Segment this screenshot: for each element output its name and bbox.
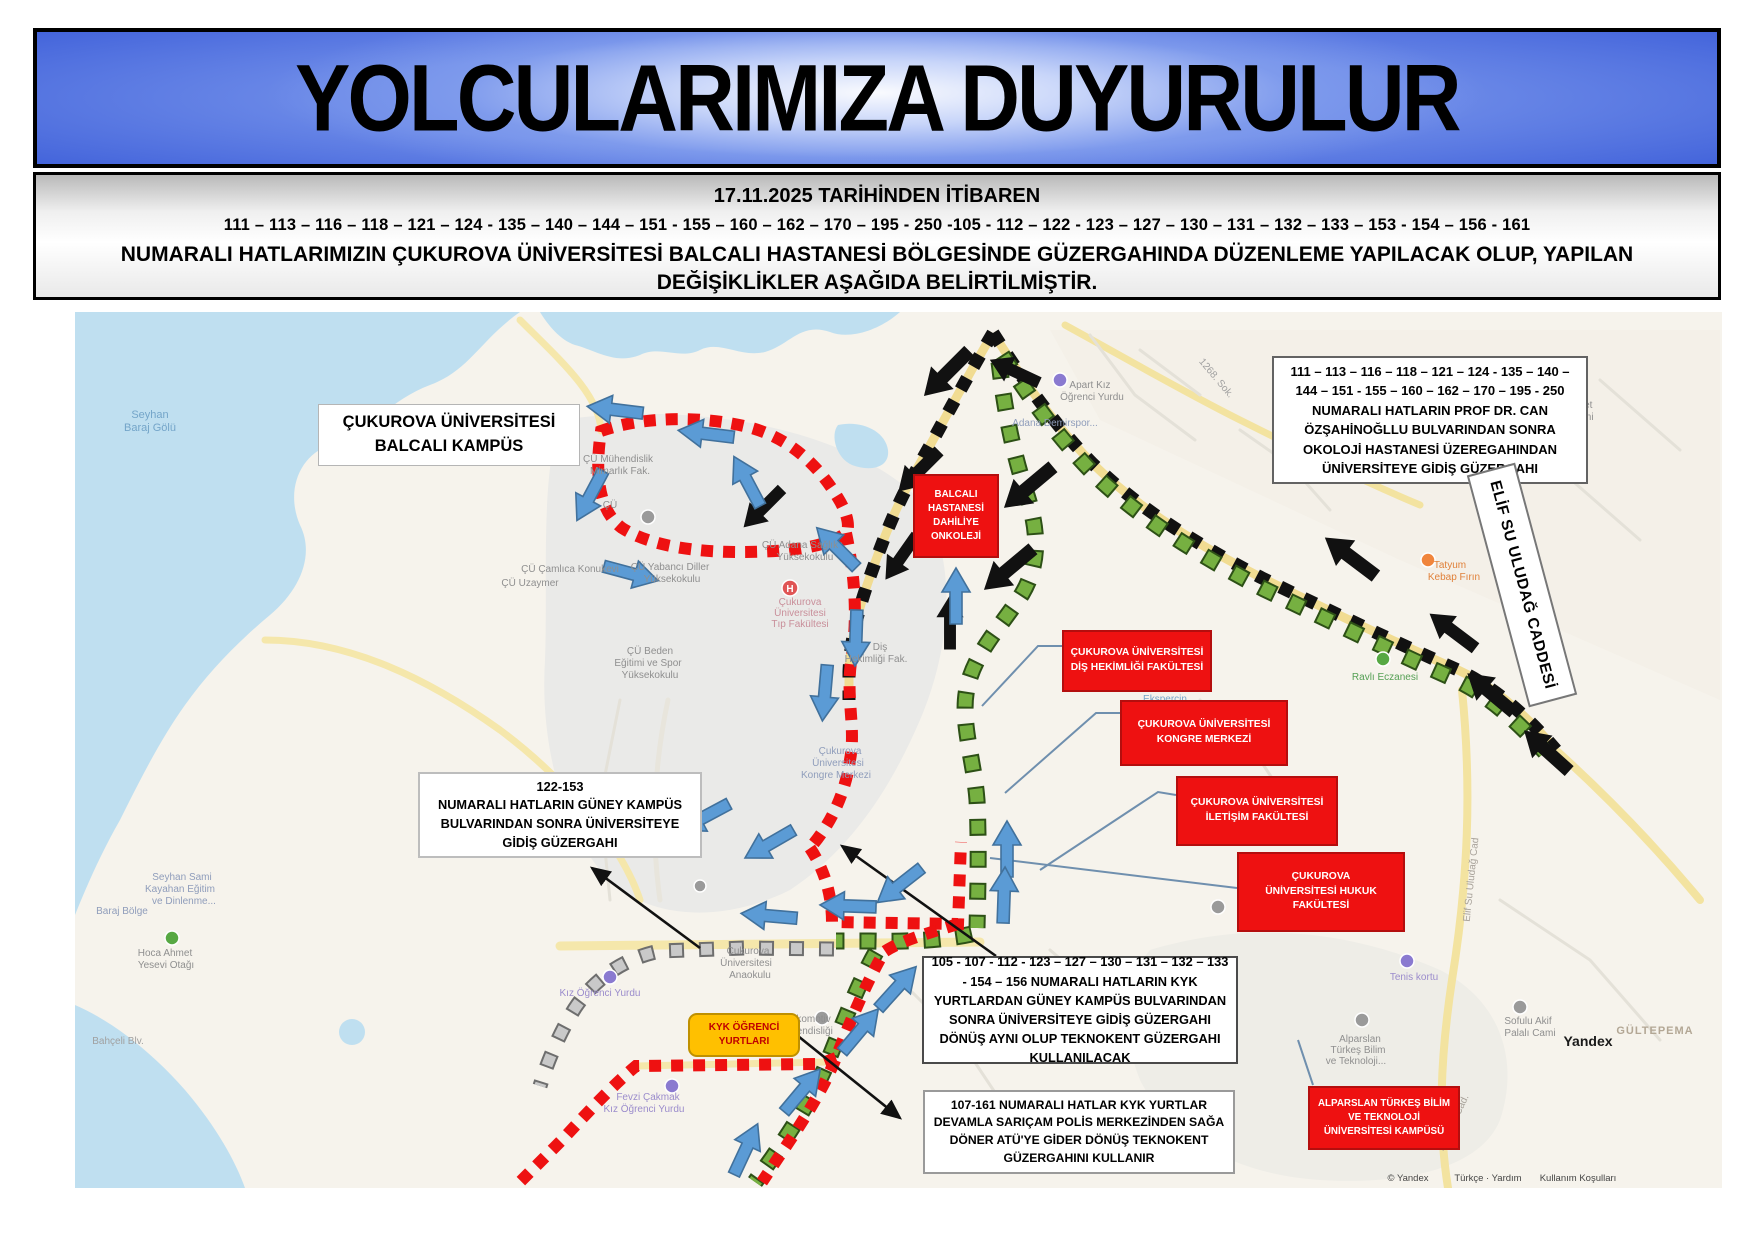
map-label: Çukurova: [727, 946, 770, 957]
map-label: Tatyum: [1434, 560, 1466, 571]
map-label: Diş: [873, 642, 887, 653]
building-icon: [1211, 900, 1225, 914]
map-label: Kız Öğrenci Yurdu: [560, 987, 641, 999]
map-label: Kongre Merkezi: [801, 770, 871, 781]
university-icon: [1355, 1013, 1369, 1027]
attribution-copyright: © Yandex: [1388, 1173, 1429, 1184]
dorm-icon: [603, 970, 617, 984]
map-label: Seyhan: [131, 409, 168, 421]
map-label: Yesevi Otağı: [138, 960, 194, 971]
callout-alparslan-universitesi: ALPARSLAN TÜRKEŞ BİLİM VE TEKNOLOJİ ÜNİV…: [1308, 1086, 1460, 1150]
pharmacy-icon: [1376, 652, 1390, 666]
callout-text: 107-161 NUMARALI HATLAR KYK YURTLAR DEVA…: [933, 1097, 1225, 1168]
map-label: Öğrenci Yurdu: [1060, 391, 1124, 403]
map-label: Tenis kortu: [1390, 972, 1438, 983]
callout-route-105: 105 - 107 - 112 - 123 – 127 – 130 – 131 …: [922, 956, 1238, 1064]
map-label: ve Dinlenme...: [152, 896, 216, 907]
map-label: Türkeş Bilim: [1330, 1045, 1385, 1056]
callout-hukuk-fakultesi: ÇUKUROVA ÜNİVERSİTESİ HUKUK FAKÜLTESİ: [1237, 852, 1405, 932]
callout-kyk-yurtlari: KYK ÖĞRENCİ YURTLARI: [688, 1013, 800, 1057]
road-label: Bahçeli Blv.: [92, 1036, 144, 1047]
callout-line: BALCALI KAMPÜS: [375, 435, 524, 459]
map-label: Palalı Cami: [1504, 1028, 1555, 1039]
callout-text: ÇUKUROVA ÜNİVERSİTESİ HUKUK FAKÜLTESİ: [1261, 870, 1381, 915]
attribution-links: Türkçe · Yardım: [1454, 1173, 1521, 1184]
svg-text:H: H: [786, 584, 793, 595]
notice-date: 17.11.2025 TARİHİNDEN İTİBAREN: [36, 185, 1718, 208]
map-label: ÇÜ Yabancı Diller: [631, 561, 710, 573]
callout-line: ÇUKUROVA ÜNİVERSİTESİ: [343, 411, 556, 435]
map-label: Kız Öğrenci Yurdu: [604, 1103, 685, 1115]
callout-text: KYK ÖĞRENCİ YURTLARI: [690, 1021, 798, 1050]
building-icon: [694, 880, 706, 892]
callout-text: 111 – 113 – 116 – 118 – 121 – 124 - 135 …: [1282, 362, 1578, 479]
callout-balcali-kampus: ÇUKUROVA ÜNİVERSİTESİ BALCALI KAMPÜS: [318, 404, 580, 466]
map-label: Yüksekokulu: [644, 574, 701, 585]
map-label: Eğitimi ve Spor: [614, 658, 682, 669]
map-label: ÇÜ Mühendislik: [583, 453, 654, 465]
map-label: Baraj Bölge: [96, 906, 148, 917]
map-label: Anaokulu: [729, 970, 771, 981]
tennis-icon: [1400, 954, 1414, 968]
callout-text: 105 - 107 - 112 - 123 – 127 – 130 – 131 …: [930, 952, 1230, 1067]
callout-text: ÇUKUROVA ÜNİVERSİTESİ DİŞ HEKİMLİĞİ FAKÜ…: [1070, 646, 1204, 676]
map-label: Baraj Gölü: [124, 422, 176, 434]
map-label: Üniversitesi: [774, 607, 826, 619]
district-label: GÜLTEPEMA: [1616, 1024, 1693, 1037]
callout-text: ÇUKUROVA ÜNİVERSİTESİ KONGRE MERKEZİ: [1132, 718, 1276, 748]
map-label: Çukurova: [819, 746, 862, 757]
map-label: Yüksekokulu: [777, 552, 834, 563]
mosque-icon: [1513, 1000, 1527, 1014]
callout-kongre-merkezi: ÇUKUROVA ÜNİVERSİTESİ KONGRE MERKEZİ: [1120, 700, 1288, 766]
yandex-logo: Yandex: [1563, 1033, 1612, 1049]
map-label: Çukurova: [779, 597, 822, 608]
map-label: Alparslan: [1339, 1034, 1381, 1045]
callout-text: NUMARALI HATLARIN GÜNEY KAMPÜS BULVARIND…: [426, 796, 694, 852]
notice-description: NUMARALI HATLARIMIZIN ÇUKUROVA ÜNİVERSİT…: [96, 241, 1658, 298]
map-label: Ravlı Eczanesi: [1352, 672, 1418, 683]
callout-dis-hekimligi: ÇUKUROVA ÜNİVERSİTESİ DİŞ HEKİMLİĞİ FAKÜ…: [1062, 630, 1212, 692]
callout-heading: 122-153: [537, 778, 584, 797]
map-label: Tıp Fakültesi: [771, 619, 828, 630]
callout-route-northeast: 111 – 113 – 116 – 118 – 121 – 124 - 135 …: [1272, 356, 1588, 484]
map-label: ÇÜ: [603, 499, 617, 511]
map-label: Sofulu Akif: [1504, 1016, 1551, 1027]
callout-text: BALCALI HASTANESİ DAHİLİYE ONKOLEJİ: [917, 488, 995, 545]
map-label: ÇÜ Çamlıca Konukevi: [521, 563, 619, 575]
map-label: Yüksekokulu: [622, 670, 679, 681]
callout-route-122-153: 122-153 NUMARALI HATLARIN GÜNEY KAMPÜS B…: [418, 772, 702, 858]
park-icon: [165, 931, 179, 945]
dorm-icon: [1053, 373, 1067, 387]
notice-band: 17.11.2025 TARİHİNDEN İTİBAREN 111 – 113…: [33, 172, 1721, 300]
building-icon: [641, 510, 655, 524]
map-label: Üniversitesi: [720, 957, 772, 969]
announcement-poster: YOLCULARIMIZA DUYURULUR 17.11.2025 TARİH…: [0, 0, 1754, 1240]
map-label: Apart Kız: [1069, 380, 1110, 391]
map-label: Hoca Ahmet: [138, 948, 193, 959]
map-label: ÇÜ Uzaymer: [501, 577, 559, 589]
map-label: Fevzi Çakmak: [616, 1092, 680, 1103]
dorm-icon: [665, 1079, 679, 1093]
map-label: Adana Demirspor...: [1012, 418, 1098, 429]
header-banner: YOLCULARIMIZA DUYURULUR: [33, 28, 1721, 168]
map-label: ÇÜ Adana Sağlık: [762, 539, 839, 551]
map-label: Seyhan Sami: [152, 872, 211, 883]
callout-route-107-161: 107-161 NUMARALI HATLAR KYK YURTLAR DEVA…: [923, 1090, 1235, 1174]
map-label: ÇÜ Beden: [627, 645, 673, 657]
map-label: Kayahan Eğitim: [145, 884, 215, 895]
page-title: YOLCULARIMIZA DUYURULUR: [295, 43, 1459, 153]
notice-route-numbers: 111 – 113 – 116 – 118 – 121 – 124 - 135 …: [36, 216, 1718, 235]
map-label: ve Teknoloji...: [1326, 1056, 1386, 1067]
callout-iletisim-fakultesi: ÇUKUROVA ÜNİVERSİTESİ İLETİŞİM FAKÜLTESİ: [1176, 776, 1338, 846]
callout-text: ALPARSLAN TÜRKEŞ BİLİM VE TEKNOLOJİ ÜNİV…: [1316, 1097, 1452, 1140]
callout-text: ÇUKUROVA ÜNİVERSİTESİ İLETİŞİM FAKÜLTESİ: [1188, 796, 1326, 826]
callout-balcali-hastanesi: BALCALI HASTANESİ DAHİLİYE ONKOLEJİ: [913, 474, 999, 558]
map-label: Mimarlık Fak.: [590, 466, 650, 477]
map-label: Üniversitesi: [812, 757, 864, 769]
map-label: Hekimliği Fak.: [845, 654, 908, 665]
map-label: Kebap Fırın: [1428, 572, 1480, 583]
attribution-terms: Kullanım Koşulları: [1540, 1173, 1617, 1184]
